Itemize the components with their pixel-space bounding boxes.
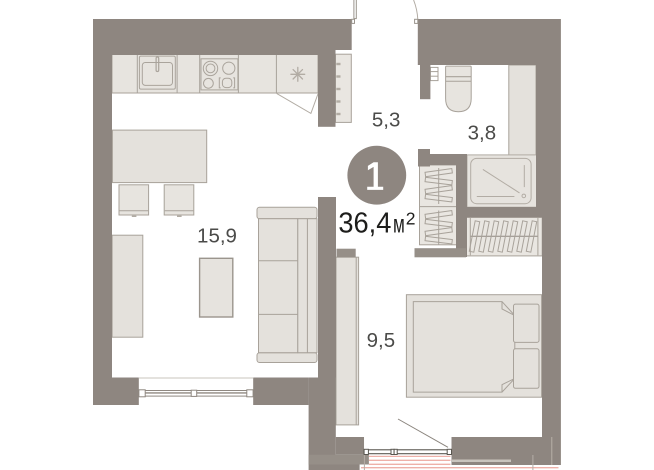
svg-text:2: 2 — [406, 208, 416, 228]
svg-text:5,3: 5,3 — [372, 108, 401, 131]
svg-text:15,9: 15,9 — [197, 225, 237, 248]
svg-text:9,5: 9,5 — [367, 329, 396, 352]
svg-text:м: м — [393, 208, 405, 238]
svg-text:3,8: 3,8 — [468, 121, 497, 144]
svg-text:36,4: 36,4 — [338, 206, 391, 238]
